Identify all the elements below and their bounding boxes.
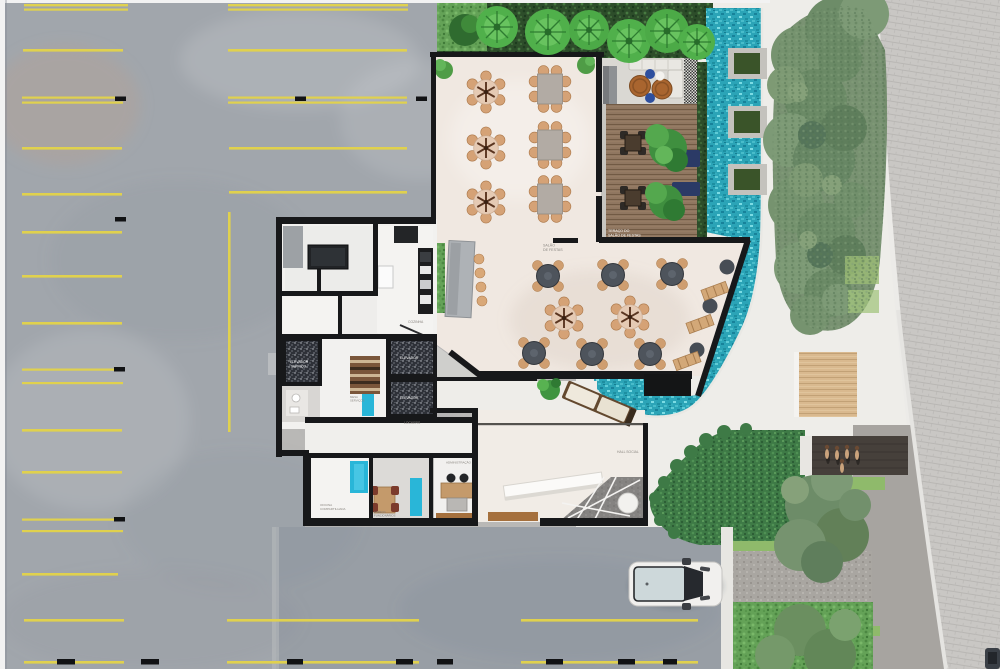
svg-text:LOCKERS: LOCKERS [404, 421, 421, 425]
svg-text:TERAÇO DO: TERAÇO DO [608, 229, 630, 233]
svg-text:ELEVADOR: ELEVADOR [290, 360, 309, 364]
svg-text:ELEVADOR: ELEVADOR [400, 396, 419, 400]
svg-text:COMPARTILHADA: COMPARTILHADA [320, 507, 346, 511]
svg-text:ADMINISTRAÇÃO: ADMINISTRAÇÃO [446, 460, 472, 465]
svg-text:ELEVADOR: ELEVADOR [400, 356, 419, 360]
svg-text:FUNCIONÁRIOS: FUNCIONÁRIOS [374, 514, 396, 518]
svg-text:SALÃO: SALÃO [543, 243, 555, 248]
svg-text:SERVIÇO: SERVIÇO [291, 365, 307, 369]
svg-text:HALL SOCIAL: HALL SOCIAL [617, 450, 639, 454]
svg-text:SERVIÇOS: SERVIÇOS [350, 399, 365, 403]
svg-text:SALÃO DE FESTAS: SALÃO DE FESTAS [608, 233, 641, 238]
svg-text:COZINHA: COZINHA [408, 320, 424, 324]
svg-text:DE FESTAS: DE FESTAS [543, 248, 563, 252]
